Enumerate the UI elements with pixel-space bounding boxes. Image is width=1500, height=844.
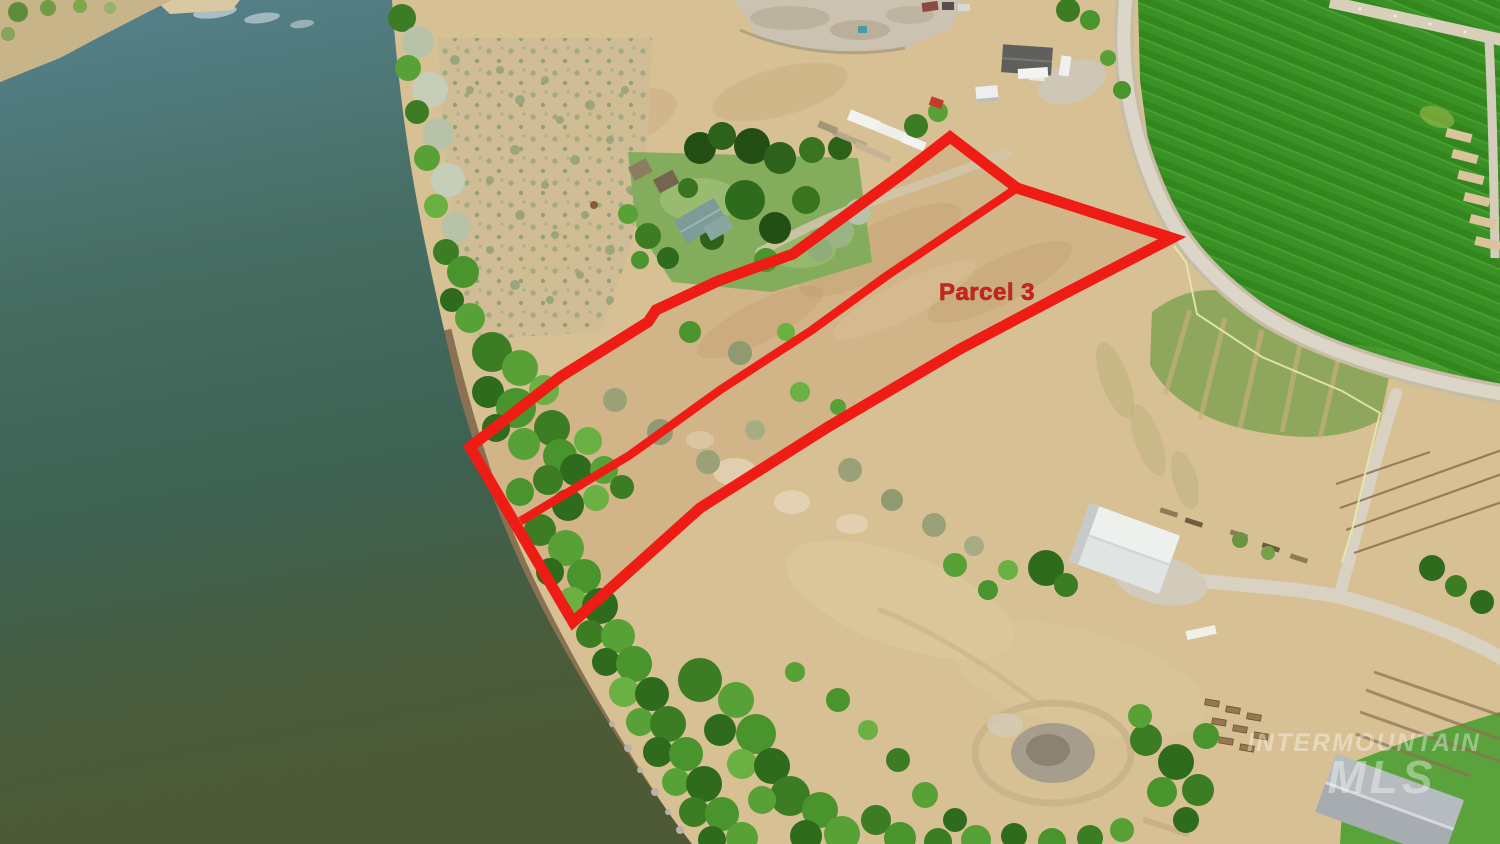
aerial-photo-canvas: Parcel 3 INTERMOUNTAIN MLS (0, 0, 1500, 844)
parcel-label: Parcel 3 (939, 279, 1035, 306)
aerial-photo: Parcel 3 INTERMOUNTAIN MLS (0, 0, 1500, 844)
carport (975, 85, 998, 103)
rv-trailer (1018, 67, 1049, 79)
watermark-line2: MLS (1327, 751, 1436, 803)
horse (590, 201, 598, 209)
teal-tarp (858, 26, 867, 33)
vehicle (942, 2, 954, 10)
vehicle (958, 4, 970, 11)
